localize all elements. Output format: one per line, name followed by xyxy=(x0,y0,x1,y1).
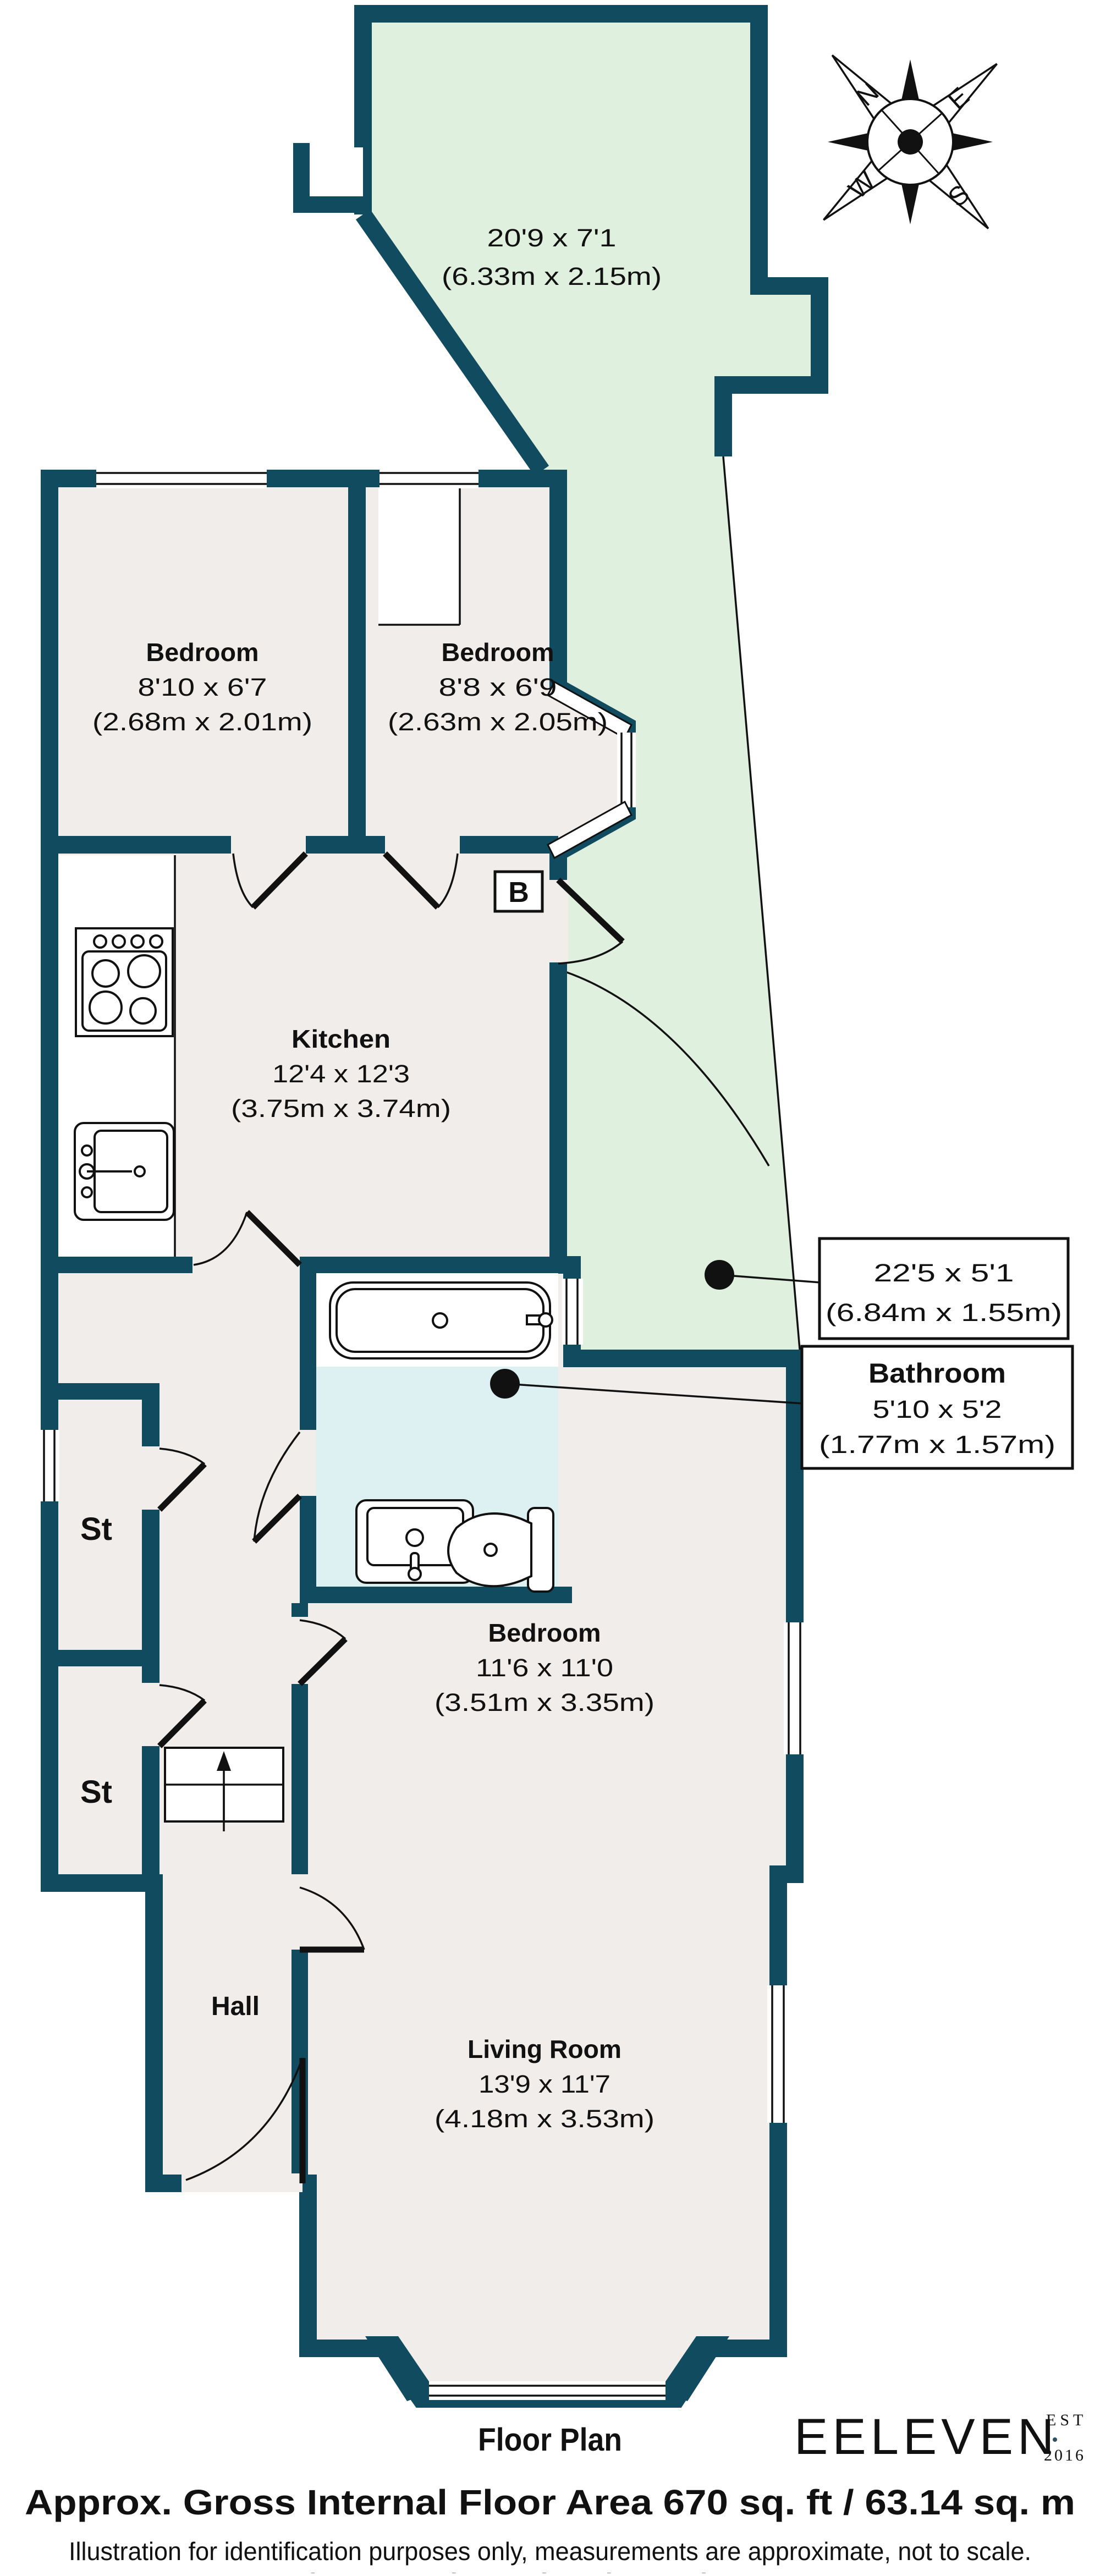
svg-text:20'9 x 7'1: 20'9 x 7'1 xyxy=(487,224,617,252)
logo-year: 2016 xyxy=(1044,2446,1086,2464)
footer-credit: Plan produced using PlanUp. xyxy=(280,2568,820,2573)
bathtub-icon xyxy=(330,1283,552,1358)
boiler-text: B xyxy=(508,877,529,909)
svg-text:(3.51m x 3.35m): (3.51m x 3.35m) xyxy=(435,1688,654,1716)
window-bedroom-left-top xyxy=(96,469,267,488)
plan-title: Floor Plan xyxy=(478,2422,622,2458)
svg-text:5'10 x 5'2: 5'10 x 5'2 xyxy=(873,1395,1002,1423)
svg-text:13'9 x 11'7: 13'9 x 11'7 xyxy=(479,2070,610,2098)
svg-text:(2.68m x 2.01m): (2.68m x 2.01m) xyxy=(92,708,312,736)
svg-text:Kitchen: Kitchen xyxy=(291,1025,391,1053)
footer-area: Approx. Gross Internal Floor Area 670 sq… xyxy=(25,2483,1075,2522)
label-store1: St xyxy=(80,1511,112,1547)
window-living-east xyxy=(767,1985,789,2123)
svg-text:8'10 x 6'7: 8'10 x 6'7 xyxy=(138,673,267,701)
label-hall: Hall xyxy=(211,1992,260,2021)
svg-text:22'5 x 5'1: 22'5 x 5'1 xyxy=(874,1259,1014,1287)
svg-text:(4.18m x 3.53m): (4.18m x 3.53m) xyxy=(435,2105,654,2133)
svg-text:Bedroom: Bedroom xyxy=(146,638,259,667)
logo: EELEVEN EST 2016 xyxy=(794,2409,1087,2465)
label-store2: St xyxy=(80,1774,112,1810)
svg-text:Bathroom: Bathroom xyxy=(868,1358,1006,1389)
stove-icon xyxy=(76,928,173,1036)
logo-est: EST xyxy=(1046,2411,1087,2429)
svg-text:(6.84m x 1.55m): (6.84m x 1.55m) xyxy=(826,1298,1062,1326)
bathroom xyxy=(316,1273,558,1592)
svg-text:8'8 x 6'9: 8'8 x 6'9 xyxy=(439,673,557,701)
svg-text:Living Room: Living Room xyxy=(468,2035,621,2063)
floor-plan-canvas: B 20'9 x 7'1 (6.33m x 2.15m) Bedroom 8'1… xyxy=(0,0,1100,2573)
compass-icon: N E S W xyxy=(746,0,1075,306)
logo-dot xyxy=(1053,2437,1057,2442)
window-bedroom-rear-east xyxy=(784,1622,806,1754)
window-store-west xyxy=(40,1430,59,1501)
chimney-block xyxy=(378,487,460,625)
svg-text:(2.63m x 2.05m): (2.63m x 2.05m) xyxy=(388,708,608,736)
svg-text:11'6 x 11'0: 11'6 x 11'0 xyxy=(476,1654,613,1682)
logo-wordmark: EELEVEN xyxy=(794,2409,1058,2465)
svg-text:(1.77m x 1.57m): (1.77m x 1.57m) xyxy=(819,1430,1055,1458)
svg-text:Bedroom: Bedroom xyxy=(488,1619,601,1647)
footer-disclaimer: Illustration for identification purposes… xyxy=(69,2537,1031,2566)
kitchen-counter xyxy=(58,855,175,1257)
svg-text:(3.75m x 3.74m): (3.75m x 3.74m) xyxy=(231,1094,451,1122)
svg-text:(6.33m x 2.15m): (6.33m x 2.15m) xyxy=(442,262,662,290)
svg-text:Bedroom: Bedroom xyxy=(442,638,554,667)
stairs-icon xyxy=(165,1748,283,1831)
window-bedroom-mid-top xyxy=(380,469,479,488)
svg-text:12'4 x 12'3: 12'4 x 12'3 xyxy=(272,1060,410,1088)
boiler-label: B xyxy=(495,872,542,911)
window-bathroom-east xyxy=(562,1279,583,1345)
sink-icon xyxy=(75,1123,174,1220)
